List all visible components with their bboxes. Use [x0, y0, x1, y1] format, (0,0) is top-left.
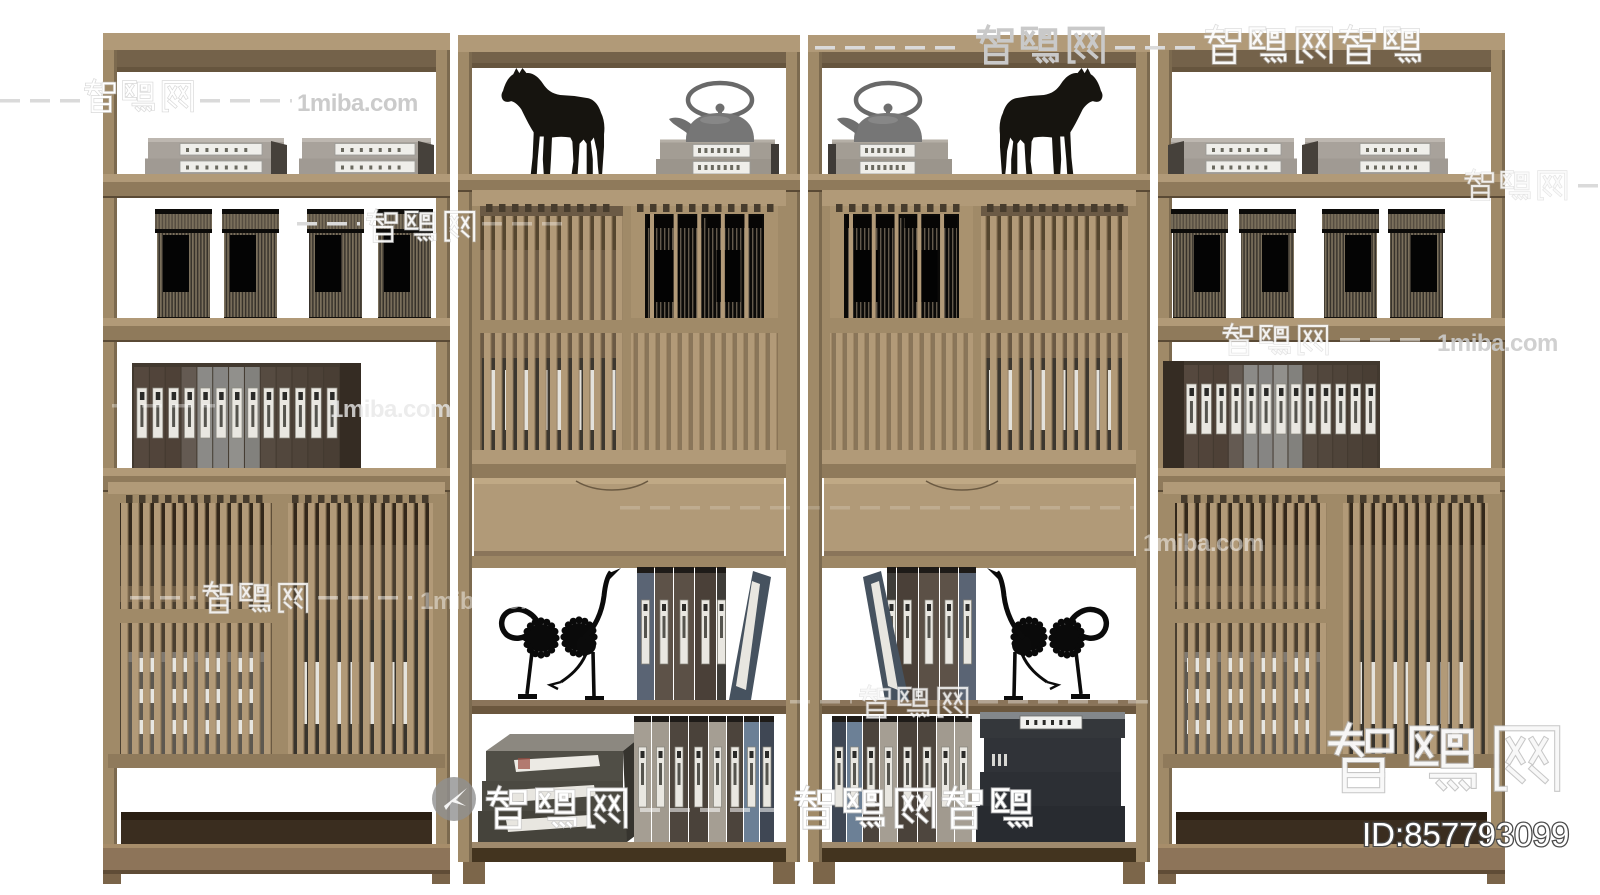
svg-text:1miba.com: 1miba.com	[1143, 530, 1264, 557]
svg-text:1miba.com: 1miba.com	[330, 396, 451, 423]
svg-text:1miba.com: 1miba.com	[1437, 330, 1558, 357]
svg-text:1miba.com: 1miba.com	[297, 90, 418, 117]
svg-text:ID:857793099: ID:857793099	[1362, 816, 1569, 853]
svg-text:1miba.com: 1miba.com	[420, 588, 541, 615]
